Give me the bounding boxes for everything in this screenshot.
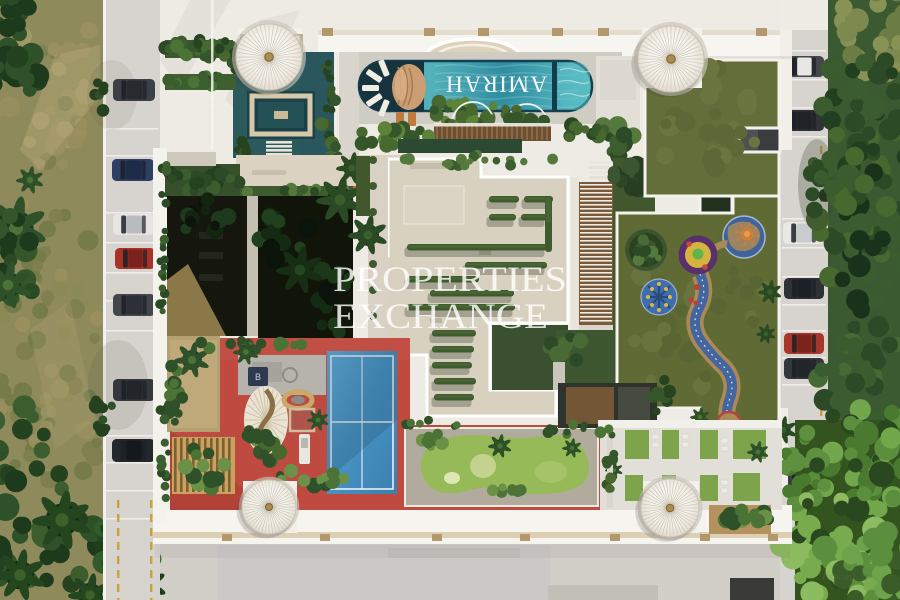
svg-text:EXCHANGE: EXCHANGE — [333, 296, 548, 336]
svg-text:PROPERTIES: PROPERTIES — [333, 259, 567, 299]
svg-text:Bshomi st: Bshomi st — [822, 571, 869, 583]
svg-text:AMIRAH: AMIRAH — [445, 71, 548, 97]
svg-text:B: B — [255, 372, 261, 382]
